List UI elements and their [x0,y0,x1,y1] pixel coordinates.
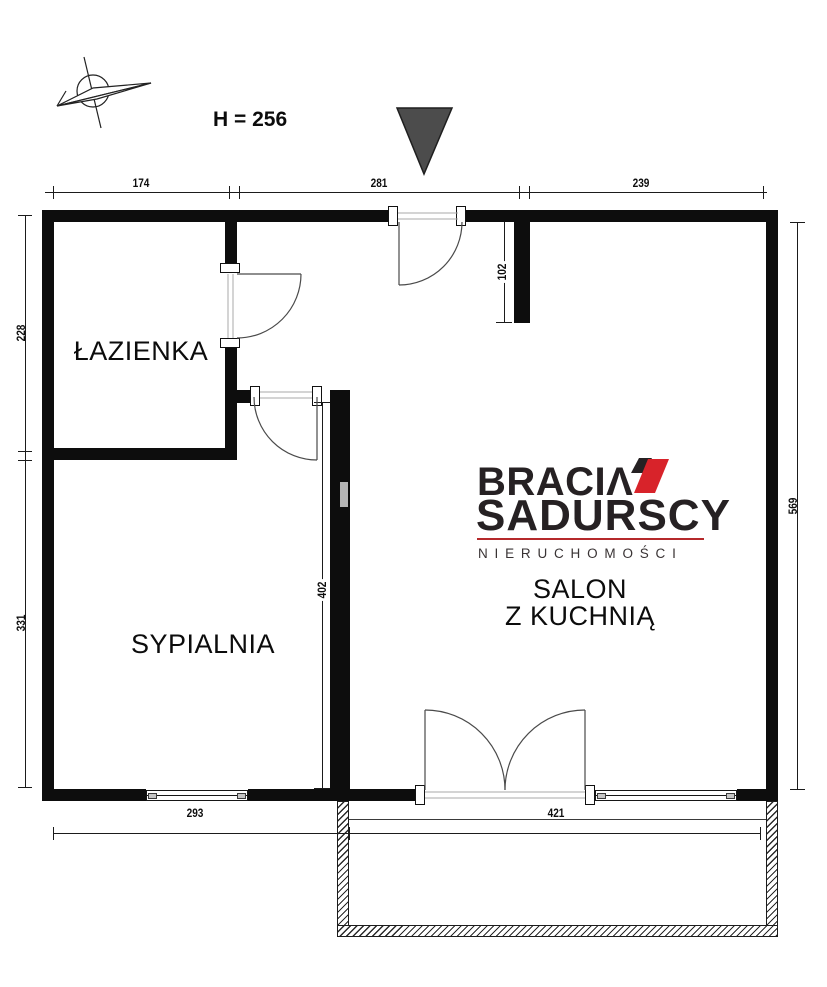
dim-label-top-2: 281 [371,176,388,190]
wall-top-left [42,210,390,222]
bedroom-door-jamb-right [312,386,322,406]
dim-tick [760,827,761,840]
dim-line-bottom [53,833,760,834]
balcony-rail-left [337,801,349,937]
dim-tick [519,186,520,199]
balcony-door-left-swing [425,710,505,790]
wall-entry-stub [514,222,530,323]
dim-label-entry-depth: 102 [495,261,509,283]
entrance-arrow-icon [397,108,452,174]
bedroom-door-jamb-left [250,386,260,406]
balcony-door-jamb-right [585,785,595,805]
living-window [595,790,737,801]
ceiling-height-label: H = 256 [213,108,287,132]
logo-red-rule [477,538,704,540]
dim-tick [229,186,230,199]
balcony-rail-right [766,801,778,937]
balcony-door-right-swing [505,710,585,790]
room-label-living: SALON Z KUCHNIĄ [505,576,655,630]
dim-line-top [45,192,767,193]
logo-accent-marks [631,458,669,493]
bedroom-window-cap-right [237,793,246,799]
wall-left [42,210,54,801]
wall-bottom-living-right [737,789,778,801]
wall-top-right [466,210,778,222]
living-window-glass-line [596,795,736,796]
dim-tick [790,789,805,790]
dim-tick [349,827,350,840]
dim-label-left-1: 228 [14,325,28,342]
compass-icon [57,57,151,128]
dim-tick [53,186,54,199]
dim-tick [18,787,32,788]
dim-label-top-1: 174 [133,176,150,190]
entrance-door-swing [399,222,462,285]
room-label-bedroom: SYPIALNIA [131,629,275,660]
dim-label-right-1: 569 [786,498,800,515]
dim-tick [337,827,338,840]
dim-tick [790,222,805,223]
dim-label-top-3: 239 [633,176,650,190]
bedroom-window [146,790,248,801]
living-window-cap-right [726,793,735,799]
logo-brand-bottom: SADURSCY [476,494,731,538]
wall-bedroom-door-stub [237,390,250,403]
dim-tick [763,186,764,199]
dim-tick [18,451,32,452]
room-label-bathroom: ŁAZIENKA [74,336,209,367]
dim-tick [496,322,512,323]
dim-tick [53,827,54,840]
wall-bottom-bedroom-left [42,789,146,801]
dim-label-bottom-1: 293 [187,806,204,820]
dim-label-left-2: 331 [14,615,28,632]
balcony-rail-bottom [337,925,778,937]
bedroom-door-swing [254,397,317,460]
wall-right [766,210,778,801]
bathroom-door-swing [237,274,301,338]
bathroom-door-jamb-bottom [220,338,240,348]
room-label-living-line1: SALON [505,576,655,603]
bedroom-window-glass-line [147,795,247,796]
dim-label-bedroom-wall: 402 [315,579,329,601]
wall-bathroom-right-lower [225,343,237,450]
floor-plan-canvas: H = 256 174 281 239 [0,0,827,987]
dim-label-bottom-2: 421 [548,806,565,820]
dim-tick [18,460,32,461]
bathroom-door-jamb-top [220,263,240,273]
entrance-door-jamb-right [456,206,466,226]
dim-tick [239,186,240,199]
dim-tick [18,215,32,216]
wall-central-recess [340,482,348,507]
logo-tagline: NIERUCHOMOŚCI [478,547,683,561]
wall-bathroom-right-upper [225,222,237,268]
entrance-door-jamb-left [388,206,398,226]
room-label-living-line2: Z KUCHNIĄ [505,603,655,630]
wall-bathroom-bottom [54,448,237,460]
dim-tick [529,186,530,199]
living-window-cap-left [597,793,606,799]
balcony-door-jamb-left [415,785,425,805]
wall-central [330,390,350,801]
dim-line-left [25,215,26,787]
dim-tick [314,402,330,403]
bedroom-window-cap-left [148,793,157,799]
dim-tick [314,788,330,789]
